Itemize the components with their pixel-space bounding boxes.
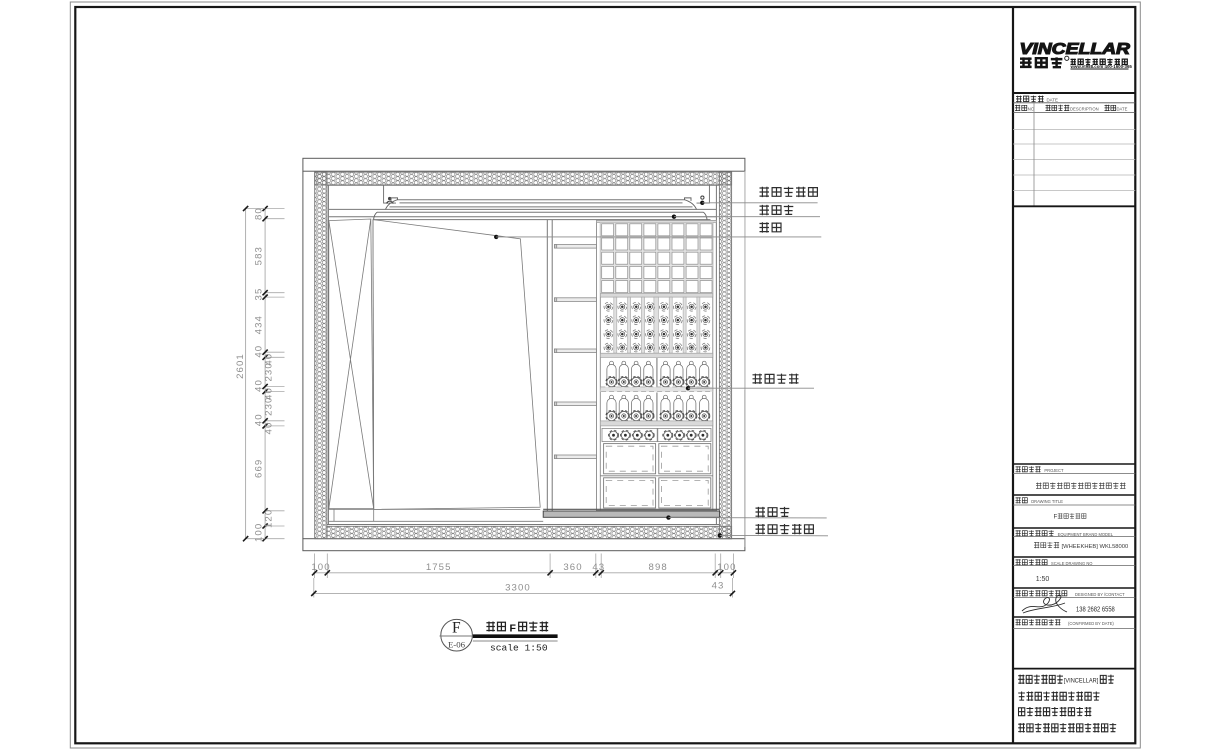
svg-text:100: 100	[311, 562, 330, 573]
svg-text:360: 360	[563, 562, 582, 573]
svg-text:PROJECT: PROJECT	[1044, 468, 1064, 473]
svg-text:583: 583	[254, 246, 265, 265]
svg-text:2601: 2601	[235, 353, 246, 379]
svg-text:100: 100	[717, 562, 736, 573]
svg-text:www.vt988.com 400-1600-365: www.vt988.com 400-1600-365	[1070, 64, 1133, 69]
svg-text:1:50: 1:50	[1036, 576, 1050, 583]
svg-text:DESCRIPTION: DESCRIPTION	[1070, 106, 1099, 111]
svg-text:100: 100	[254, 523, 265, 542]
svg-text:669: 669	[254, 459, 265, 478]
svg-text:scale 1:50: scale 1:50	[490, 642, 548, 653]
svg-text:3300: 3300	[505, 583, 531, 594]
svg-text:43: 43	[712, 581, 725, 592]
svg-text:1755: 1755	[426, 562, 452, 573]
svg-text:DATE: DATE	[1047, 97, 1058, 102]
svg-text:35: 35	[254, 288, 265, 301]
svg-text:138 2682 6558: 138 2682 6558	[1076, 607, 1115, 614]
svg-text:(CONFIRMED BY DATE): (CONFIRMED BY DATE)	[1068, 621, 1114, 626]
svg-text:43: 43	[592, 562, 605, 573]
svg-text:40: 40	[264, 422, 275, 435]
svg-text:F: F	[510, 622, 517, 634]
svg-text:DATE: DATE	[1117, 106, 1128, 111]
svg-text:VINCELLAR: VINCELLAR	[1020, 41, 1131, 58]
svg-text:F: F	[452, 620, 461, 637]
svg-text:80: 80	[254, 207, 265, 220]
svg-text:E-06: E-06	[448, 640, 466, 650]
svg-text:[WHEEKHEB] WKL58000: [WHEEKHEB] WKL58000	[1062, 544, 1129, 550]
svg-text:120: 120	[264, 509, 275, 528]
svg-text:434: 434	[254, 315, 265, 334]
svg-text:DRAWING TITLE: DRAWING TITLE	[1031, 499, 1063, 504]
svg-text:230: 230	[264, 362, 275, 381]
svg-text:230: 230	[264, 397, 275, 416]
svg-text:F: F	[1054, 514, 1058, 521]
svg-text:DESIGNED BY /CONTACT: DESIGNED BY /CONTACT	[1075, 592, 1125, 597]
svg-text:898: 898	[649, 562, 668, 573]
svg-text:[VINCELLAR]: [VINCELLAR]	[1064, 678, 1099, 685]
